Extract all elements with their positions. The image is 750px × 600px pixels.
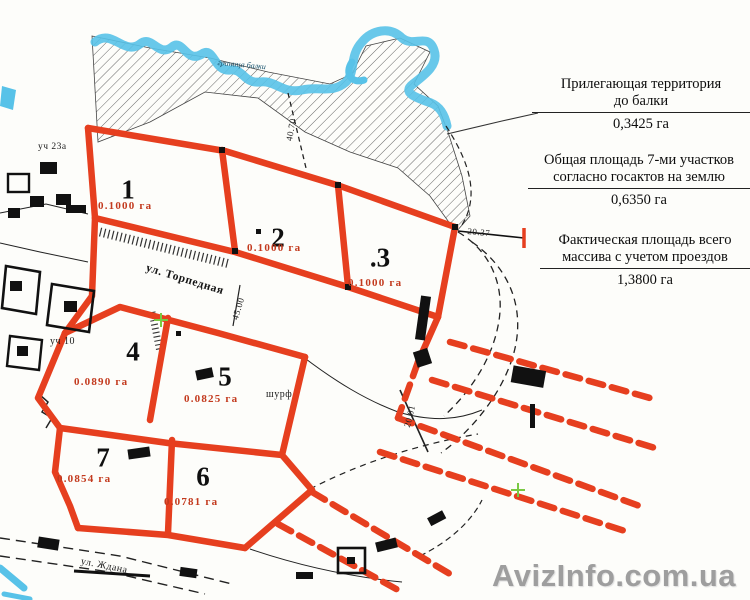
watermark-avizinfo: AvizInfo.com.ua	[492, 558, 736, 594]
annotation-total-area-state-acts: Общая площадь 7-ми участков согласно гос…	[528, 152, 750, 209]
plot-5-number: 5	[218, 362, 232, 393]
map-edge-water-marks	[0, 86, 30, 599]
annotation-actual-area-text: Фактическая площадь всего массива с учет…	[540, 232, 750, 269]
annotation-total-area-value: 0,6350 га	[528, 189, 750, 209]
annotation-line: массива с учетом проездов	[540, 249, 750, 266]
plot-3-area: 0.1000 га	[348, 277, 402, 289]
annotation-line: согласно госактов на землю	[528, 169, 750, 186]
label-plot-23a: уч 23а	[38, 142, 67, 152]
plot-4-number: 4	[126, 337, 140, 368]
label-plot-10: уч 10	[50, 336, 75, 347]
annotation-adjacent-territory-text: Прилегающая территория до балки	[532, 76, 750, 113]
plot-5-area: 0.0825 га	[184, 393, 238, 405]
annotation-actual-area: Фактическая площадь всего массива с учет…	[540, 232, 750, 289]
plot-4-area: 0.0890 га	[74, 376, 128, 388]
plot-7-area: 0.0854 га	[57, 473, 111, 485]
buildings-outline	[2, 174, 365, 573]
annotation-adjacent-territory: Прилегающая территория до балки 0,3425 г…	[532, 76, 750, 133]
scanned-survey-map: 1 2 .3 4 5 6 7 0.1000 га 0.1000 га 0.100…	[0, 0, 750, 600]
annotation-leader-line	[447, 113, 538, 134]
annotation-line: до балки	[532, 93, 750, 110]
label-shurf: шурф	[266, 389, 292, 400]
annotation-line: Общая площадь 7-ми участков	[528, 152, 750, 169]
plot-2-area: 0.1000 га	[247, 242, 301, 254]
plot-3-number: .3	[370, 243, 390, 274]
annotation-total-area-text: Общая площадь 7-ми участков согласно гос…	[528, 152, 750, 189]
plot-1-area: 0.1000 га	[98, 200, 152, 212]
annotation-actual-area-value: 1,3800 га	[540, 269, 750, 289]
plot-boundaries-red	[38, 128, 455, 548]
plot-6-number: 6	[196, 462, 210, 493]
annotation-adjacent-territory-value: 0,3425 га	[532, 113, 750, 133]
annotation-line: Фактическая площадь всего	[540, 232, 750, 249]
plot-7-number: 7	[96, 443, 110, 474]
annotation-line: Прилегающая территория	[532, 76, 750, 93]
plot-6-area: 0.0781 га	[164, 496, 218, 508]
